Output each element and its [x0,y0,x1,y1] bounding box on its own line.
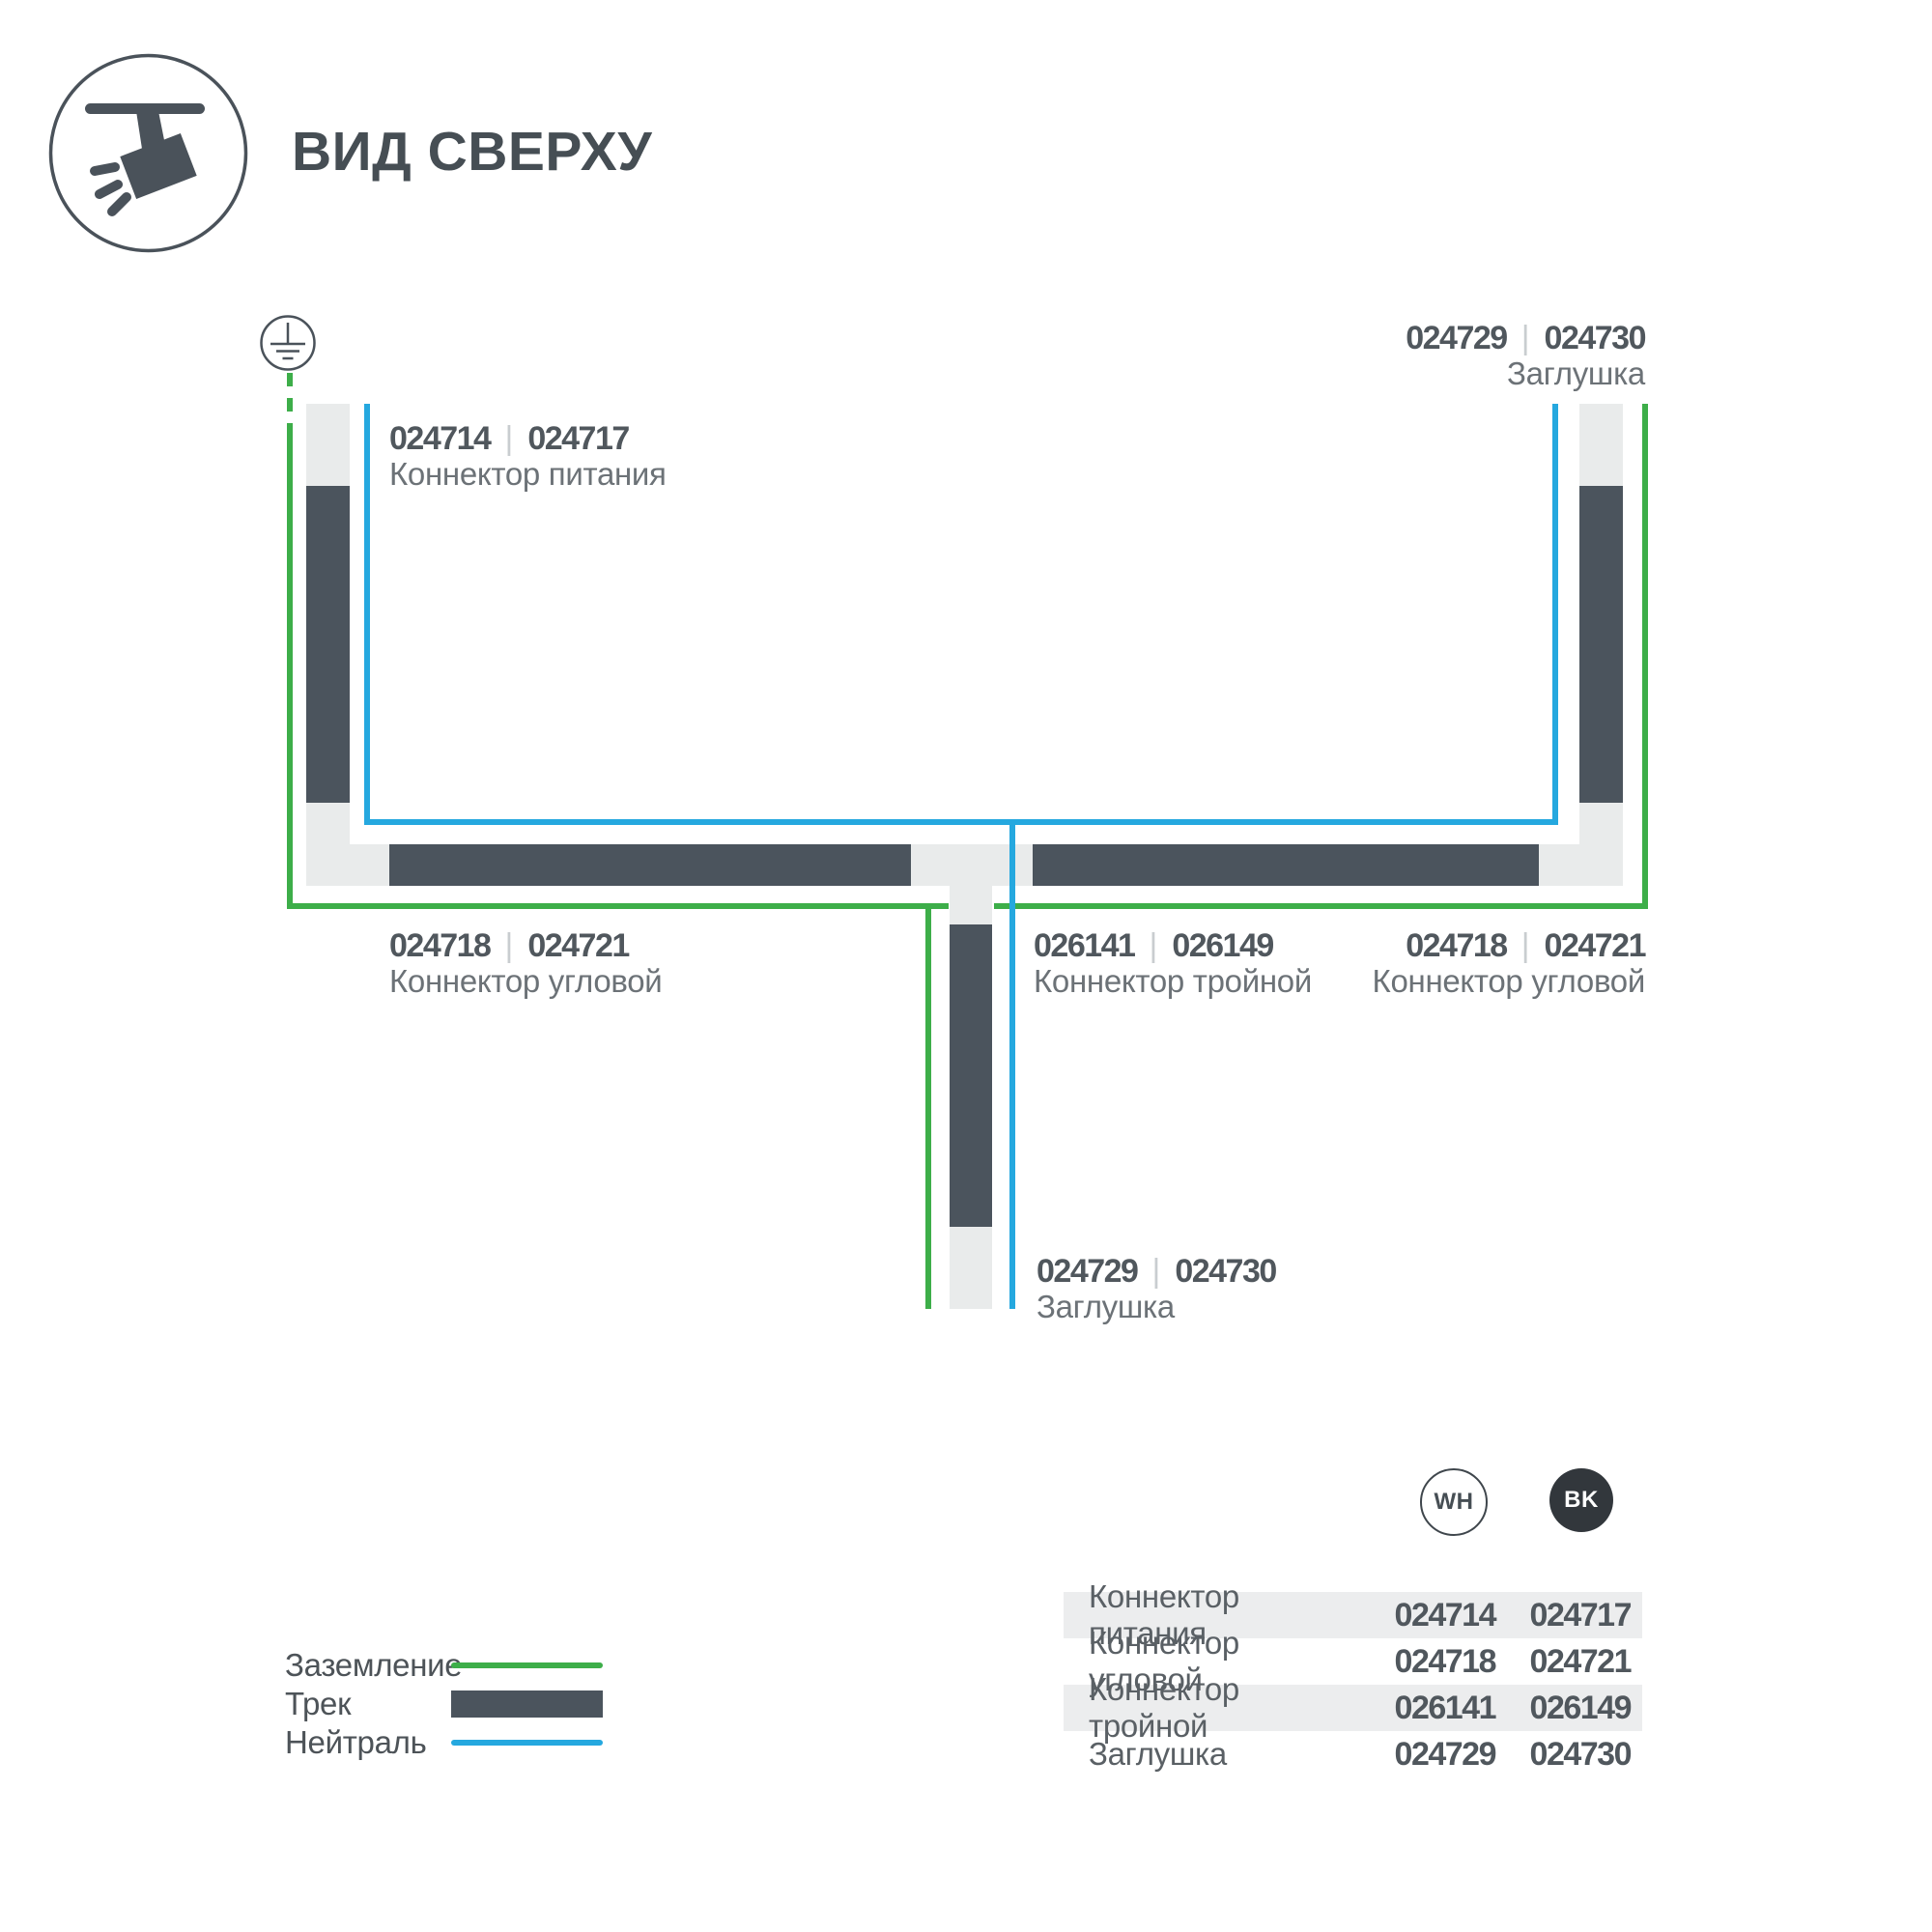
table-code-bk: 024730 [1495,1736,1631,1774]
code-bk: 024721 [1545,927,1645,964]
codes-table: Коннектор питания 024714 024717 Коннекто… [1064,1592,1642,1777]
ground-line-left [287,423,293,909]
code-bk: 024717 [527,420,628,457]
table-code-bk: 024717 [1495,1597,1631,1634]
end-cap-bottom [950,1227,992,1309]
code-wh: 024714 [389,420,490,457]
table-code-bk: 026149 [1495,1690,1631,1727]
spotlight-icon [48,53,248,253]
track-left-vertical [306,486,350,803]
code-wh: 026141 [1034,927,1134,964]
code-separator: | [1521,320,1530,356]
code-pair: 024718|024721 [1373,930,1645,961]
page: ВИД СВЕРХУ 024714|024717 Коннектор питан… [0,0,1932,1932]
ground-line-middle [925,909,931,1309]
track-middle-vertical [950,924,992,1227]
track-right-vertical [1579,486,1623,803]
table-row: Заглушка 024729 024730 [1064,1731,1642,1777]
neutral-line-middle [1009,819,1015,1309]
table-part-name: Коннектор тройной [1089,1671,1360,1745]
legend-row-ground: Заземление [285,1646,603,1685]
tee-connector-stem [950,886,992,924]
legend-label: Нейтраль [285,1724,451,1761]
neutral-line-right [1552,404,1558,825]
neutral-line-left [364,404,370,825]
code-pair: 026141|026149 [1034,930,1312,961]
ground-line-right [1642,404,1648,909]
label-power-connector: 024714|024717 Коннектор питания [389,423,667,491]
track-swatch [451,1690,603,1718]
code-wh: 024729 [1406,320,1506,356]
ground-line-bottom-right [994,903,1648,909]
code-bk: 024730 [1175,1253,1275,1290]
part-name: Коннектор угловой [1373,965,1645,998]
track-horizontal-right [1033,844,1539,886]
code-separator: | [1151,1253,1160,1290]
part-name: Коннектор угловой [389,965,662,998]
neutral-line-top [364,819,1558,825]
legend-label: Заземление [285,1647,451,1684]
ground-line-bottom-left [287,903,949,909]
neutral-line-swatch [451,1740,603,1746]
part-name: Коннектор питания [389,458,667,491]
label-tee-connector: 026141|026149 Коннектор тройной [1034,930,1312,998]
code-pair: 024729|024730 [1037,1256,1276,1287]
label-corner-connector-right: 024718|024721 Коннектор угловой [1373,930,1645,998]
table-code-wh: 026141 [1360,1690,1495,1727]
variant-white-badge: WH [1420,1468,1488,1536]
label-end-cap-top: 024729|024730 Заглушка [1406,323,1645,390]
code-pair: 024729|024730 [1406,323,1645,354]
label-end-cap-bottom: 024729|024730 Заглушка [1037,1256,1276,1323]
code-wh: 024718 [1406,927,1506,964]
code-bk: 024721 [527,927,628,964]
ground-line-dashed [287,373,293,425]
table-code-wh: 024714 [1360,1597,1495,1634]
code-separator: | [504,420,513,457]
part-name: Заглушка [1406,357,1645,390]
legend-label: Трек [285,1686,451,1722]
table-part-name: Заглушка [1089,1736,1360,1773]
part-name: Заглушка [1037,1291,1276,1323]
track-horizontal-left [389,844,911,886]
part-name: Коннектор тройной [1034,965,1312,998]
label-corner-connector-left: 024718|024721 Коннектор угловой [389,930,662,998]
code-pair: 024718|024721 [389,930,662,961]
legend-row-neutral: Нейтраль [285,1723,603,1762]
table-code-bk: 024721 [1495,1643,1631,1681]
code-wh: 024718 [389,927,490,964]
code-bk: 026149 [1172,927,1272,964]
end-cap-right [1579,404,1623,486]
variant-black-badge: BK [1549,1468,1613,1532]
legend: Заземление Трек Нейтраль [285,1646,603,1762]
earth-ground-icon [259,314,317,372]
end-cap-left [306,404,350,486]
corner-connector-left-arm [306,844,389,886]
ground-line-swatch [451,1662,603,1668]
code-separator: | [504,927,513,964]
corner-connector-right [1579,803,1623,886]
code-bk: 024730 [1545,320,1645,356]
code-pair: 024714|024717 [389,423,667,454]
code-separator: | [1149,927,1157,964]
table-code-wh: 024718 [1360,1643,1495,1681]
table-row: Коннектор тройной 026141 026149 [1064,1685,1642,1731]
table-code-wh: 024729 [1360,1736,1495,1774]
code-wh: 024729 [1037,1253,1137,1290]
legend-row-track: Трек [285,1685,603,1723]
page-title: ВИД СВЕРХУ [292,123,652,181]
code-separator: | [1521,927,1530,964]
